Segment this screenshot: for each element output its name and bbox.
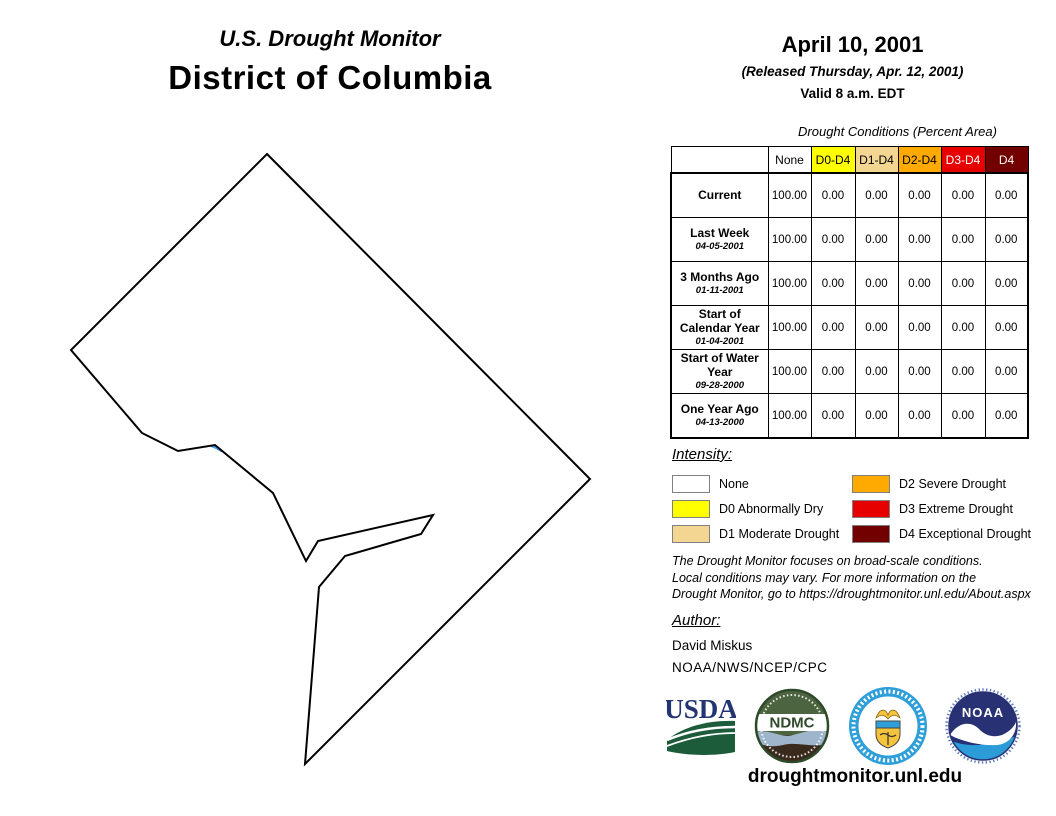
value-cell: 100.00 bbox=[768, 173, 811, 218]
noaa-logo: NOAA bbox=[945, 688, 1021, 764]
value-cell: 0.00 bbox=[898, 306, 941, 350]
legend-swatch-d1 bbox=[672, 525, 710, 543]
col-header-d4: D4 bbox=[985, 147, 1028, 174]
usda-text: USDA bbox=[666, 694, 736, 724]
table-row-current: Current 100.00 0.00 0.00 0.00 0.00 0.00 bbox=[671, 173, 1028, 218]
agency-logos: USDA NDMC bbox=[666, 686, 1052, 766]
value-cell: 0.00 bbox=[811, 262, 855, 306]
ndmc-text: NDMC bbox=[770, 715, 815, 732]
value-cell: 0.00 bbox=[811, 218, 855, 262]
report-title: U.S. Drought Monitor bbox=[30, 26, 630, 52]
value-cell: 0.00 bbox=[811, 394, 855, 439]
legend-item-d1: D1 Moderate Drought bbox=[672, 525, 852, 542]
legend-item-none: None bbox=[672, 475, 852, 492]
value-cell: 0.00 bbox=[898, 173, 941, 218]
value-cell: 0.00 bbox=[941, 350, 985, 394]
value-cell: 0.00 bbox=[811, 306, 855, 350]
value-cell: 0.00 bbox=[941, 218, 985, 262]
legend-item-d2: D2 Severe Drought bbox=[852, 475, 1031, 492]
value-cell: 0.00 bbox=[985, 394, 1028, 439]
valid-time: Valid 8 a.m. EDT bbox=[660, 86, 1045, 101]
region-title: District of Columbia bbox=[30, 59, 630, 97]
usda-logo: USDA bbox=[666, 694, 736, 758]
legend-swatch-d4 bbox=[852, 525, 890, 543]
table-row-last-week: Last Week 04-05-2001 100.00 0.00 0.00 0.… bbox=[671, 218, 1028, 262]
value-cell: 100.00 bbox=[768, 394, 811, 439]
drought-conditions-table: None D0-D4 D1-D4 D2-D4 D3-D4 D4 Current … bbox=[670, 146, 1029, 439]
value-cell: 0.00 bbox=[898, 262, 941, 306]
value-cell: 0.00 bbox=[855, 262, 898, 306]
value-cell: 0.00 bbox=[985, 350, 1028, 394]
date-block: April 10, 2001 (Released Thursday, Apr. … bbox=[660, 32, 1045, 101]
intensity-legend: Intensity: None D0 Abnormally Dry D1 Mod… bbox=[672, 446, 1048, 550]
row-label: One Year Ago 04-13-2000 bbox=[671, 394, 768, 439]
row-label: Start of Water Year 09-28-2000 bbox=[671, 350, 768, 394]
row-label: Start of Calendar Year 01-04-2001 bbox=[671, 306, 768, 350]
value-cell: 0.00 bbox=[985, 306, 1028, 350]
value-cell: 0.00 bbox=[898, 350, 941, 394]
legend-swatch-d3 bbox=[852, 500, 890, 518]
value-cell: 100.00 bbox=[768, 262, 811, 306]
corner-cell bbox=[671, 147, 768, 174]
legend-item-d4: D4 Exceptional Drought bbox=[852, 525, 1031, 542]
value-cell: 100.00 bbox=[768, 350, 811, 394]
row-label: Current bbox=[671, 173, 768, 218]
dc-outline bbox=[71, 154, 590, 764]
dc-map bbox=[0, 0, 656, 816]
noaa-text: NOAA bbox=[962, 705, 1004, 720]
row-label: Last Week 04-05-2001 bbox=[671, 218, 768, 262]
value-cell: 0.00 bbox=[811, 350, 855, 394]
table-row-one-year-ago: One Year Ago 04-13-2000 100.00 0.00 0.00… bbox=[671, 394, 1028, 439]
value-cell: 0.00 bbox=[855, 306, 898, 350]
legend-swatch-d2 bbox=[852, 475, 890, 493]
legend-item-d0: D0 Abnormally Dry bbox=[672, 500, 852, 517]
table-caption: Drought Conditions (Percent Area) bbox=[767, 124, 1028, 139]
header-row: None D0-D4 D1-D4 D2-D4 D3-D4 D4 bbox=[671, 147, 1028, 174]
value-cell: 0.00 bbox=[985, 262, 1028, 306]
value-cell: 0.00 bbox=[855, 350, 898, 394]
value-cell: 0.00 bbox=[898, 218, 941, 262]
legend-item-d3: D3 Extreme Drought bbox=[852, 500, 1031, 517]
value-cell: 0.00 bbox=[941, 394, 985, 439]
value-cell: 0.00 bbox=[985, 218, 1028, 262]
legend-swatch-none bbox=[672, 475, 710, 493]
drought-monitor-page: U.S. Drought Monitor District of Columbi… bbox=[0, 0, 1056, 816]
col-header-none: None bbox=[768, 147, 811, 174]
report-date: April 10, 2001 bbox=[660, 32, 1045, 58]
author-heading: Author: bbox=[672, 612, 828, 629]
value-cell: 0.00 bbox=[941, 306, 985, 350]
value-cell: 0.00 bbox=[898, 394, 941, 439]
footer-url: droughtmonitor.unl.edu bbox=[660, 766, 1050, 788]
col-header-d0-d4: D0-D4 bbox=[811, 147, 855, 174]
value-cell: 0.00 bbox=[985, 173, 1028, 218]
author-block: Author: David Miskus NOAA/NWS/NCEP/CPC bbox=[672, 612, 828, 675]
legend-heading: Intensity: bbox=[672, 446, 1048, 463]
ndmc-logo: NDMC bbox=[753, 687, 831, 765]
value-cell: 100.00 bbox=[768, 306, 811, 350]
table-row-start-water-year: Start of Water Year 09-28-2000 100.00 0.… bbox=[671, 350, 1028, 394]
value-cell: 0.00 bbox=[855, 218, 898, 262]
row-label: 3 Months Ago 01-11-2001 bbox=[671, 262, 768, 306]
value-cell: 0.00 bbox=[811, 173, 855, 218]
col-header-d2-d4: D2-D4 bbox=[898, 147, 941, 174]
disclaimer-text: The Drought Monitor focuses on broad-sca… bbox=[672, 553, 1031, 603]
col-header-d3-d4: D3-D4 bbox=[941, 147, 985, 174]
title-block: U.S. Drought Monitor District of Columbi… bbox=[30, 26, 630, 97]
value-cell: 0.00 bbox=[855, 173, 898, 218]
col-header-d1-d4: D1-D4 bbox=[855, 147, 898, 174]
author-name: David Miskus bbox=[672, 638, 828, 653]
value-cell: 0.00 bbox=[855, 394, 898, 439]
table-row-3-months-ago: 3 Months Ago 01-11-2001 100.00 0.00 0.00… bbox=[671, 262, 1028, 306]
doc-seal bbox=[848, 686, 928, 766]
author-org: NOAA/NWS/NCEP/CPC bbox=[672, 660, 828, 675]
value-cell: 0.00 bbox=[941, 262, 985, 306]
table-row-start-calendar-year: Start of Calendar Year 01-04-2001 100.00… bbox=[671, 306, 1028, 350]
value-cell: 0.00 bbox=[941, 173, 985, 218]
release-date: (Released Thursday, Apr. 12, 2001) bbox=[660, 64, 1045, 79]
legend-swatch-d0 bbox=[672, 500, 710, 518]
value-cell: 100.00 bbox=[768, 218, 811, 262]
